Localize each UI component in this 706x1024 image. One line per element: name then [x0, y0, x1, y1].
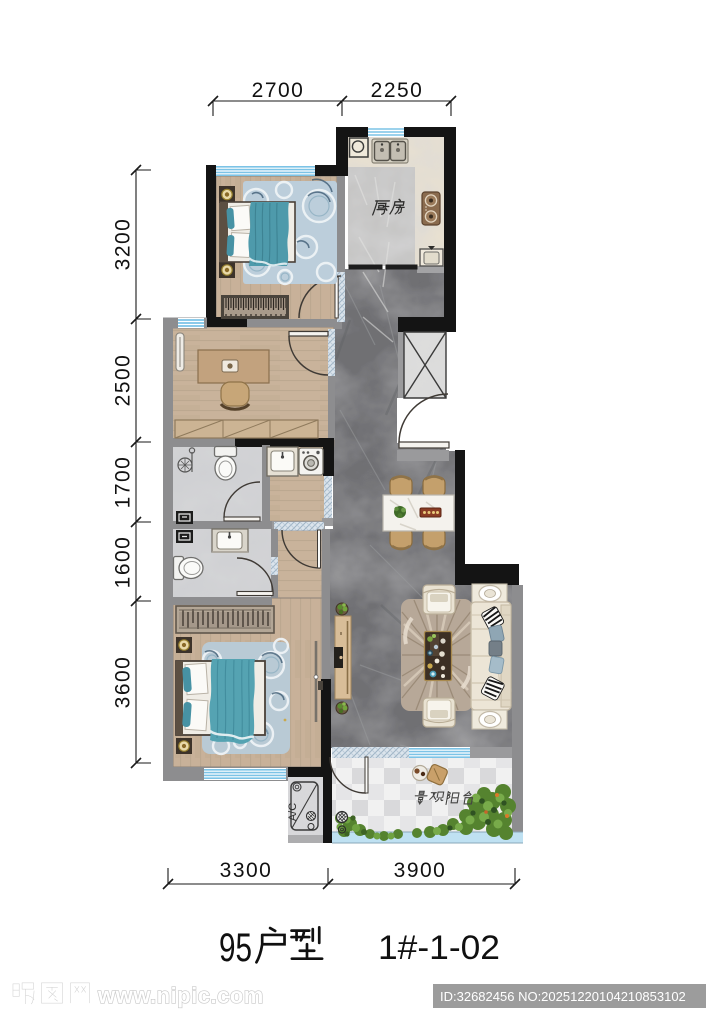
svg-text:2700: 2700	[252, 79, 305, 102]
svg-text:www.nipic.com: www.nipic.com	[97, 983, 264, 1008]
svg-text:3200: 3200	[112, 218, 135, 271]
svg-text:ID:32682456 NO:202512201042108: ID:32682456 NO:20251220104210853102	[440, 989, 686, 1004]
svg-text:1#-1-02: 1#-1-02	[378, 929, 500, 967]
svg-text:1600: 1600	[112, 536, 135, 589]
svg-text:95: 95	[219, 926, 252, 970]
svg-text:2500: 2500	[112, 354, 135, 407]
svg-text:1700: 1700	[112, 456, 135, 509]
svg-text:3300: 3300	[220, 859, 273, 882]
svg-text:3900: 3900	[394, 859, 447, 882]
svg-text:A/C: A/C	[287, 803, 299, 821]
svg-text:3600: 3600	[112, 656, 135, 709]
svg-text:2250: 2250	[371, 79, 424, 102]
